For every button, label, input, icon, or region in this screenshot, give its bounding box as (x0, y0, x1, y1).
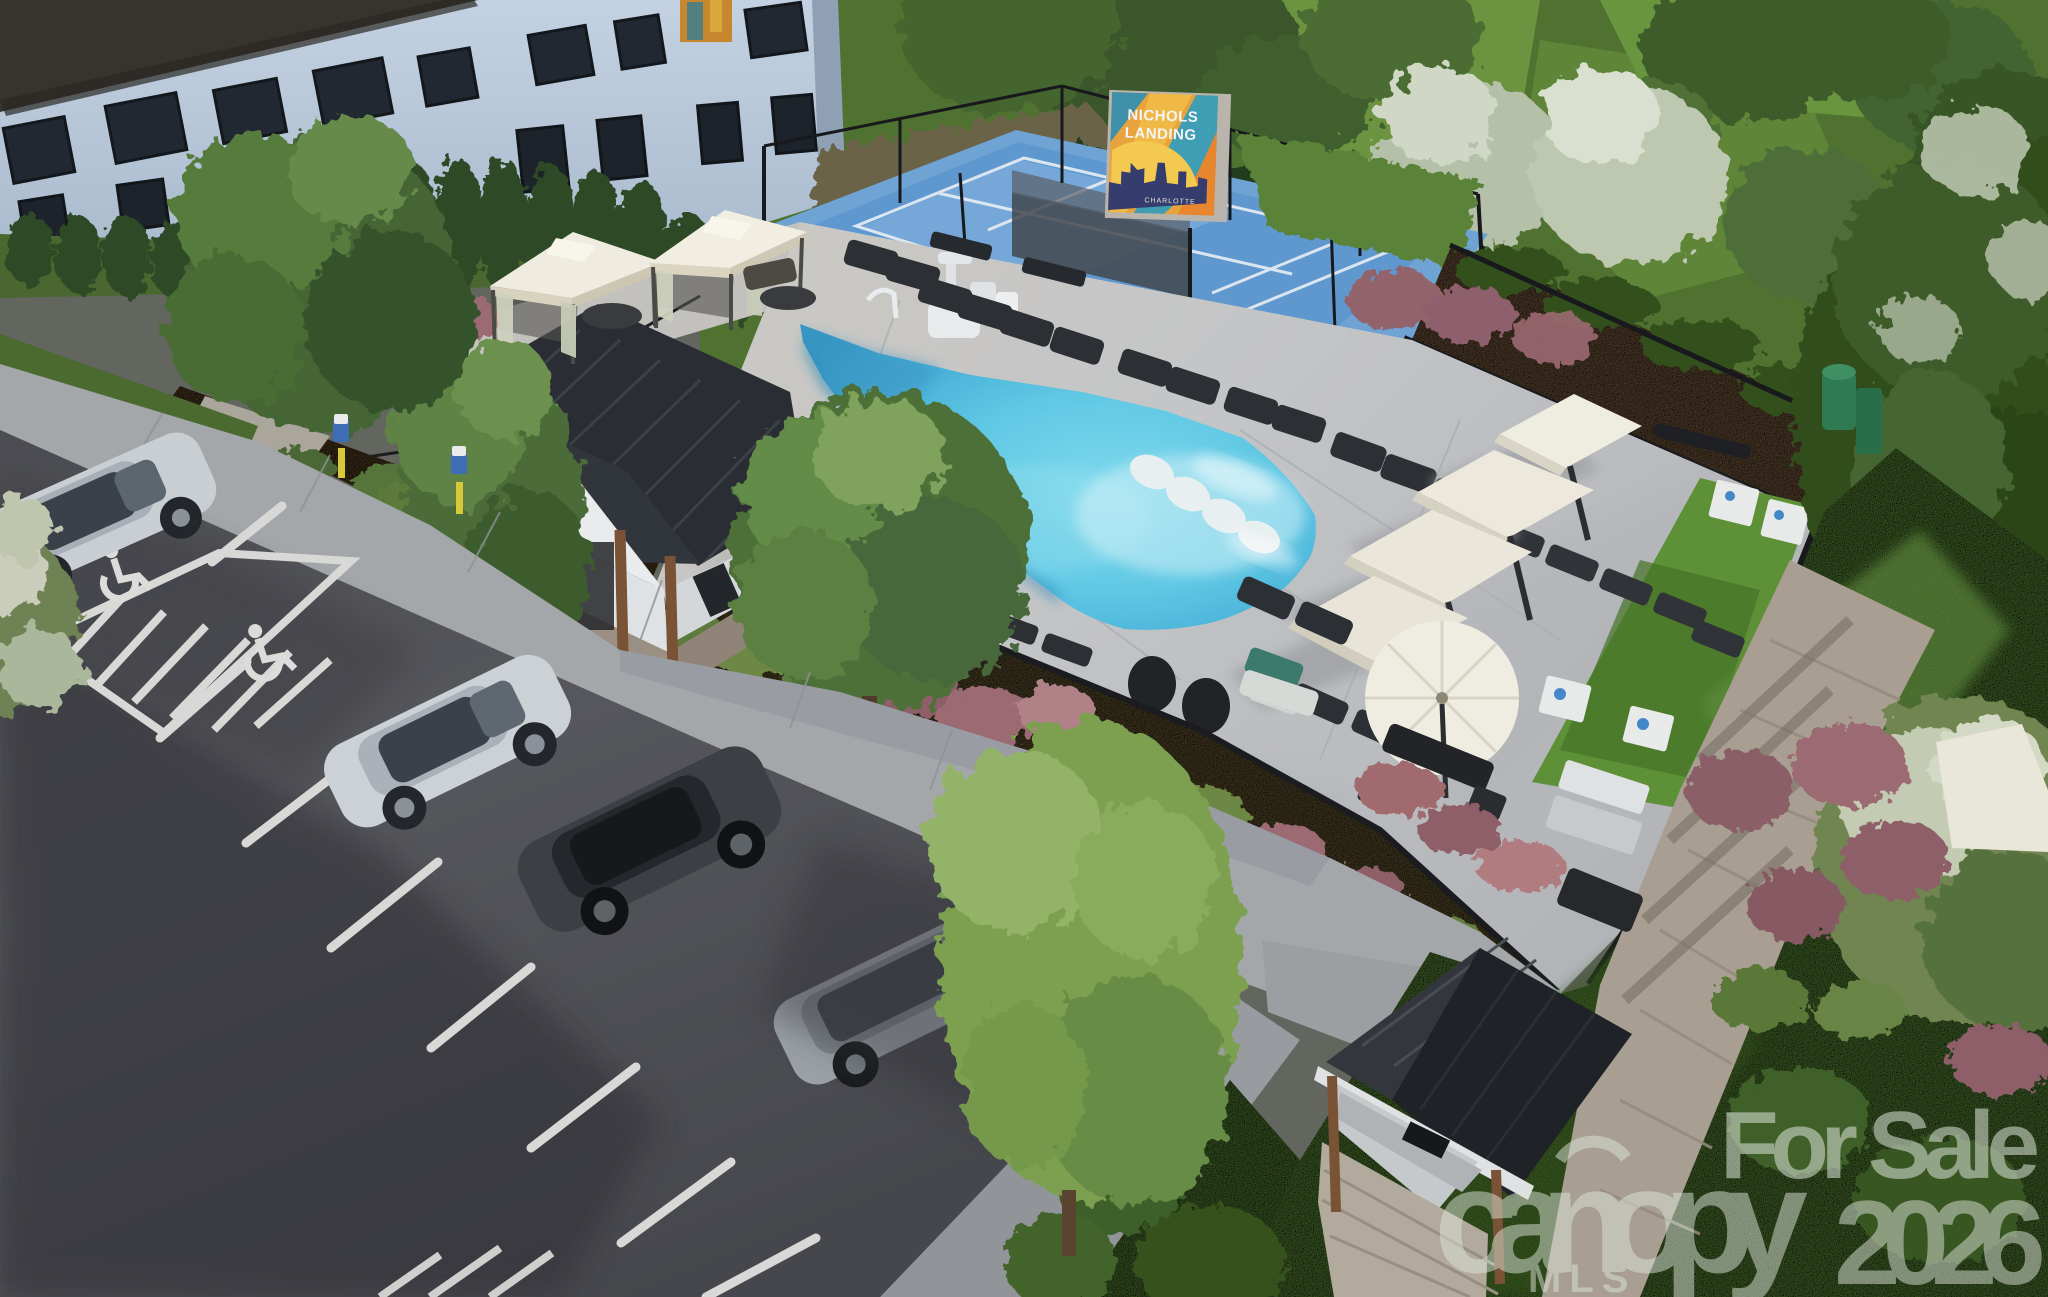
svg-text:2026: 2026 (1834, 1176, 2046, 1297)
svg-text:NICHOLS: NICHOLS (1127, 107, 1199, 126)
svg-text:LANDING: LANDING (1124, 124, 1196, 143)
svg-text:MLS: MLS (1528, 1257, 1636, 1297)
